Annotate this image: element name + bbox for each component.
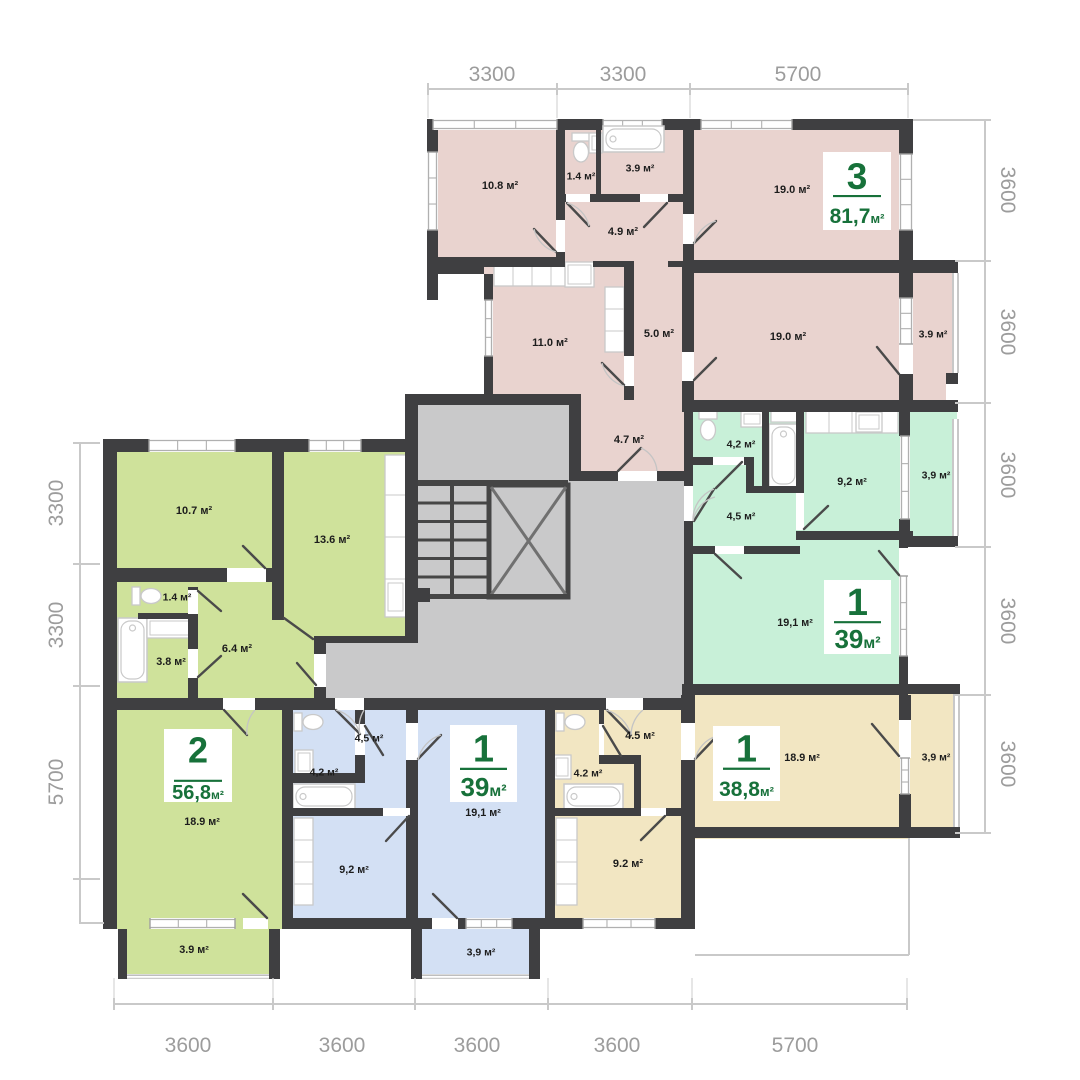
svg-text:9,2 м²: 9,2 м² — [339, 864, 369, 876]
svg-text:3600: 3600 — [165, 1034, 212, 1057]
svg-text:10.7 м²: 10.7 м² — [176, 505, 213, 517]
svg-text:1.4 м²: 1.4 м² — [163, 592, 192, 604]
svg-text:13.6 м²: 13.6 м² — [314, 534, 351, 546]
svg-text:5700: 5700 — [45, 759, 68, 806]
svg-text:3300: 3300 — [45, 602, 68, 649]
svg-text:2: 2 — [188, 730, 208, 771]
svg-text:1: 1 — [736, 729, 757, 771]
svg-text:3300: 3300 — [469, 63, 516, 86]
svg-text:3600: 3600 — [454, 1034, 501, 1057]
svg-text:4,2 м²: 4,2 м² — [310, 767, 339, 779]
svg-text:3600: 3600 — [594, 1034, 641, 1057]
svg-text:4.5 м²: 4.5 м² — [625, 730, 655, 742]
svg-text:3.9 м²: 3.9 м² — [626, 163, 655, 175]
svg-text:3,9 м²: 3,9 м² — [922, 470, 951, 482]
svg-text:3.9 м²: 3.9 м² — [179, 944, 209, 956]
svg-text:3600: 3600 — [996, 167, 1019, 214]
svg-text:3600: 3600 — [996, 452, 1019, 499]
svg-text:19,1 м²: 19,1 м² — [777, 617, 813, 629]
svg-text:3600: 3600 — [319, 1034, 366, 1057]
svg-text:3600: 3600 — [996, 741, 1019, 788]
svg-text:18.9 м²: 18.9 м² — [784, 752, 820, 764]
svg-text:6.4 м²: 6.4 м² — [222, 643, 252, 655]
svg-text:3,9 м²: 3,9 м² — [922, 752, 951, 764]
svg-text:4,5 м²: 4,5 м² — [727, 511, 756, 523]
svg-text:1: 1 — [847, 582, 868, 624]
svg-text:19,1 м²: 19,1 м² — [465, 807, 501, 819]
svg-text:4.2 м²: 4.2 м² — [574, 768, 603, 780]
svg-text:19.0 м²: 19.0 м² — [774, 184, 811, 196]
svg-text:4,5 м²: 4,5 м² — [355, 733, 384, 745]
svg-text:1: 1 — [473, 729, 494, 771]
svg-text:5700: 5700 — [775, 63, 822, 86]
svg-text:5.0 м²: 5.0 м² — [644, 328, 674, 340]
svg-text:3.9 м²: 3.9 м² — [919, 329, 948, 341]
svg-text:3.8 м²: 3.8 м² — [156, 656, 186, 668]
svg-text:11.0 м²: 11.0 м² — [532, 337, 568, 349]
svg-text:3300: 3300 — [45, 480, 68, 527]
svg-text:4.7 м²: 4.7 м² — [614, 434, 644, 446]
svg-text:5700: 5700 — [772, 1034, 819, 1057]
svg-text:9.2 м²: 9.2 м² — [613, 858, 643, 870]
svg-text:9,2 м²: 9,2 м² — [837, 476, 867, 488]
svg-text:19.0 м²: 19.0 м² — [770, 331, 807, 343]
svg-text:18.9 м²: 18.9 м² — [184, 816, 220, 828]
svg-text:10.8 м²: 10.8 м² — [482, 180, 519, 192]
svg-text:3300: 3300 — [600, 63, 647, 86]
svg-text:3600: 3600 — [996, 598, 1019, 645]
svg-text:1.4 м²: 1.4 м² — [567, 171, 596, 183]
svg-text:3600: 3600 — [996, 309, 1019, 356]
svg-text:3: 3 — [847, 156, 868, 197]
svg-text:4.9 м²: 4.9 м² — [608, 226, 638, 238]
svg-text:3,9 м²: 3,9 м² — [467, 947, 496, 959]
svg-text:4,2 м²: 4,2 м² — [727, 439, 756, 451]
